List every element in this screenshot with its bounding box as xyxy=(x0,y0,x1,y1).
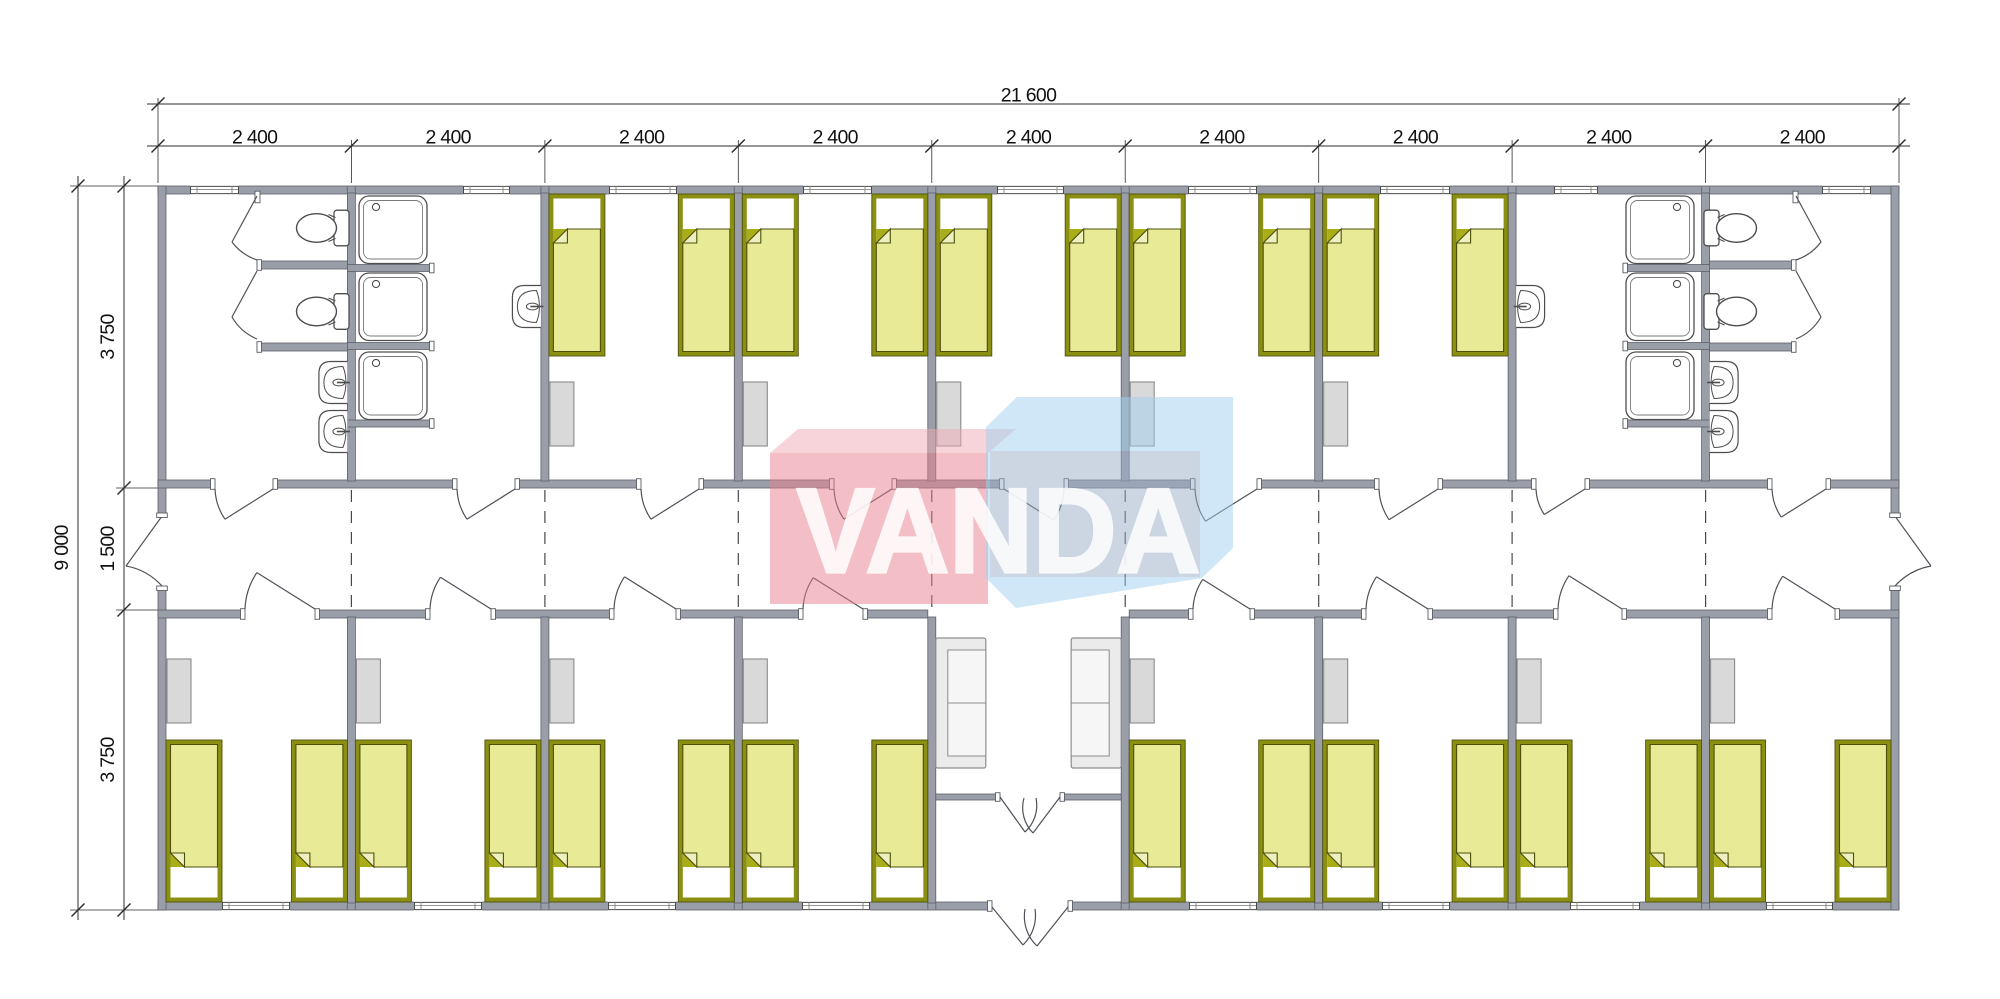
svg-text:3 750: 3 750 xyxy=(97,737,119,783)
svg-text:2 400: 2 400 xyxy=(812,127,858,149)
svg-text:2 400: 2 400 xyxy=(1199,127,1245,149)
svg-text:2 400: 2 400 xyxy=(232,127,278,149)
svg-text:21 600: 21 600 xyxy=(1001,85,1057,107)
svg-text:2 400: 2 400 xyxy=(1780,127,1826,149)
svg-text:2 400: 2 400 xyxy=(426,127,472,149)
svg-text:3 750: 3 750 xyxy=(97,314,119,360)
svg-text:2 400: 2 400 xyxy=(1393,127,1439,149)
svg-text:VANDA: VANDA xyxy=(797,463,1200,597)
svg-text:2 400: 2 400 xyxy=(1006,127,1052,149)
svg-text:1 500: 1 500 xyxy=(97,526,119,572)
svg-text:2 400: 2 400 xyxy=(1586,127,1632,149)
svg-text:9 000: 9 000 xyxy=(51,525,73,571)
svg-text:2 400: 2 400 xyxy=(619,127,665,149)
